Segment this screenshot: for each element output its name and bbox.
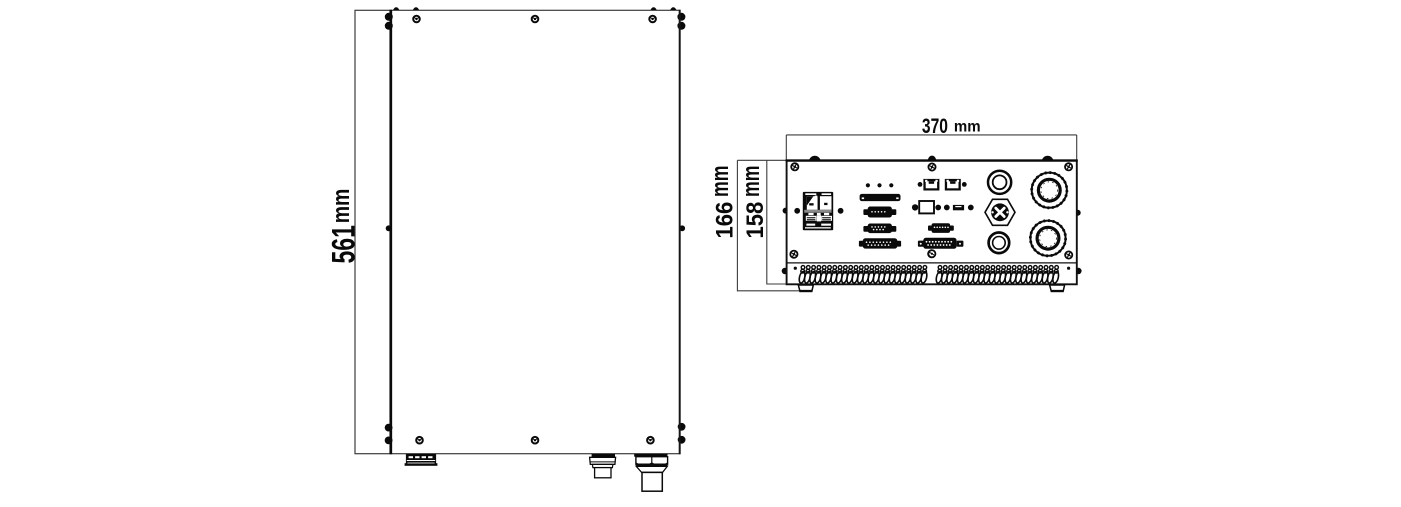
svg-text:370: 370 <box>922 114 948 138</box>
svg-text:mm: mm <box>327 189 354 224</box>
svg-text:mm: mm <box>707 165 733 197</box>
svg-text:561: 561 <box>326 225 362 263</box>
svg-text:mm: mm <box>738 165 764 197</box>
svg-text:158: 158 <box>741 202 768 239</box>
svg-text:166: 166 <box>711 202 738 239</box>
svg-text:mm: mm <box>954 118 981 136</box>
